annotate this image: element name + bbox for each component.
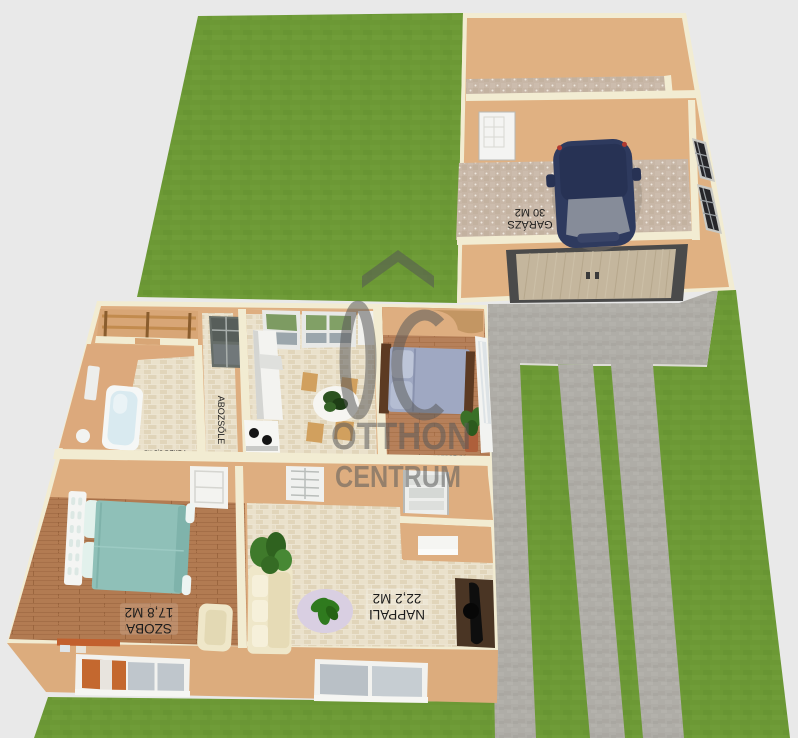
svg-text:GARÁZS: GARÁZS [507, 218, 552, 231]
svg-text:SZOBA: SZOBA [126, 621, 172, 636]
svg-text:22,2 M2: 22,2 M2 [373, 591, 422, 606]
svg-text:30 M2: 30 M2 [515, 206, 546, 218]
svg-text:NAPPALI: NAPPALI [369, 607, 425, 622]
svg-text:CENTRUM: CENTRUM [335, 459, 461, 494]
svg-text:OTTHON: OTTHON [331, 416, 471, 458]
svg-text:ABOZSŐLE: ABOZSŐLE [216, 396, 226, 445]
svg-text:17,8 M2: 17,8 M2 [125, 605, 174, 620]
